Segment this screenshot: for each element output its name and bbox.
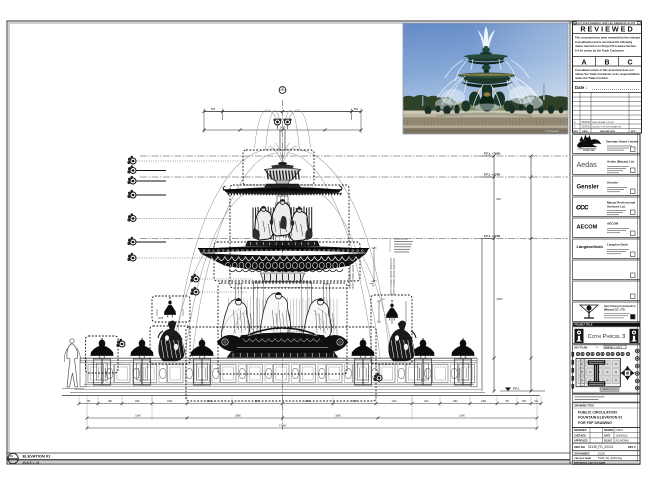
svg-text:F.F.L: F.F.L [513, 387, 520, 391]
svg-text:Consultant(s) and is accorded: Consultant(s) and is accorded the follow… [575, 40, 632, 44]
svg-text:Gensler: Gensler [607, 181, 619, 185]
svg-text:This document has been reviewe: This document has been reviewed by the r… [575, 36, 640, 40]
svg-text:2000: 2000 [305, 401, 311, 403]
svg-text:APPROVED: APPROVED [574, 440, 588, 443]
svg-text:SCALE: SCALE [604, 440, 613, 443]
svg-text:FOUNTAIN SPRAY WATER LEVEL: FOUNTAIN SPRAY WATER LEVEL [348, 252, 351, 290]
svg-text:JOB NUMBER: JOB NUMBER [574, 453, 590, 455]
svg-text:3580: 3580 [335, 415, 341, 418]
svg-text:51135_FD_20101: 51135_FD_20101 [588, 445, 614, 449]
svg-text:1180: 1180 [135, 401, 141, 403]
svg-text:Gensler: Gensler [577, 185, 600, 191]
svg-text:DATE: DATE [582, 130, 588, 133]
svg-text:Venetian Orient Limited: Venetian Orient Limited [606, 140, 639, 144]
svg-text:CAD FILE NAME: CAD FILE NAME [574, 457, 592, 460]
svg-text:Aedas (Macau) Ltd.: Aedas (Macau) Ltd. [607, 160, 635, 164]
svg-text:51135: 51135 [598, 452, 605, 455]
svg-text:12/04/10: 12/04/10 [582, 126, 592, 128]
svg-text:(Macau) CO. LTD.: (Macau) CO. LTD. [604, 308, 626, 312]
svg-text:F.F.L +6780: F.F.L +6780 [484, 173, 500, 177]
svg-text:Langdon Seah: Langdon Seah [607, 243, 628, 247]
svg-text:REFERENCE CAD FILE NAME: REFERENCE CAD FILE NAME [574, 461, 606, 464]
svg-text:1430: 1430 [391, 401, 397, 403]
svg-text:5140: 5140 [135, 415, 141, 418]
svg-text:ELEVATION 01: ELEVATION 01 [23, 454, 52, 459]
svg-text:Aedas: Aedas [577, 160, 598, 169]
svg-text:500: 500 [211, 107, 216, 111]
svg-text:APP: APP [631, 130, 636, 133]
svg-text:1168: 1168 [158, 317, 164, 320]
svg-text:3580: 3580 [235, 415, 241, 418]
svg-text:AECOM: AECOM [607, 222, 619, 226]
svg-text:relieve the Trade Contracto: relieve the Trade Contractor of its resp… [575, 72, 640, 76]
svg-text:FOR FSP DRAWING: FOR FSP DRAWING [578, 421, 612, 425]
svg-text:2000: 2000 [207, 401, 213, 403]
svg-text:Hsin Chong Construction: Hsin Chong Construction [604, 304, 636, 308]
svg-text:Consultant review of this docu: Consultant review of this document does … [575, 68, 634, 72]
svg-text:B: B [604, 59, 609, 66]
svg-text:CWKO: CWKO [616, 429, 624, 432]
svg-text:17460: 17460 [279, 424, 287, 428]
svg-text:FOUNTAIN SPRAY WATER LEVEL: FOUNTAIN SPRAY WATER LEVEL [389, 258, 392, 296]
svg-text:FOUNTAIN SPRAY WATER LEVEL: FOUNTAIN SPRAY WATER LEVEL [351, 252, 354, 290]
svg-text:ccc: ccc [576, 202, 589, 212]
svg-text:VENETIAN: VENETIAN [583, 149, 595, 152]
svg-text:R E V I E W E D: R E V I E W E D [580, 25, 632, 34]
svg-text:FOUNTAIN ELEVATION 01: FOUNTAIN ELEVATION 01 [578, 416, 622, 420]
svg-text:REV 0: REV 0 [628, 445, 636, 449]
svg-text:KEY PLAN: KEY PLAN [575, 346, 588, 349]
svg-text:DESCRIPTION: DESCRIPTION [600, 131, 615, 133]
svg-text:C: C [627, 59, 632, 66]
svg-text:REV: REV [574, 131, 579, 133]
svg-text:1110: 1110 [424, 401, 429, 403]
svg-text:AECOM: AECOM [577, 225, 598, 231]
svg-text:5140: 5140 [459, 415, 465, 418]
svg-text:ISSUED FOR INFORMATION: ISSUED FOR INFORMATION [592, 125, 622, 128]
svg-text:PROJECT TITLE: PROJECT TITLE [575, 325, 593, 327]
svg-text:AS SHOWN: AS SHOWN [616, 440, 629, 443]
svg-text:1390: 1390 [167, 401, 173, 403]
svg-text:under the Trade Contract.: under the Trade Contract. [575, 76, 609, 80]
svg-text:Services Ltd.: Services Ltd. [607, 204, 626, 208]
svg-text:PUBLIC CIRCULATION: PUBLIC CIRCULATION [578, 411, 617, 415]
svg-text:1080: 1080 [481, 401, 487, 403]
svg-text:05/03/10: 05/03/10 [582, 122, 592, 124]
svg-text:12/04/2010: 12/04/2010 [616, 434, 629, 437]
svg-text:FOUNTAIN SPRAY WATER LEVEL: FOUNTAIN SPRAY WATER LEVEL [392, 258, 395, 296]
svg-text:LangdonSeah: LangdonSeah [577, 244, 604, 249]
svg-text:SCALE 1 : 25: SCALE 1 : 25 [23, 461, 40, 465]
svg-text:F.F.L +4730: F.F.L +4730 [484, 234, 500, 238]
svg-text:820: 820 [497, 197, 502, 201]
svg-text:DRAWING TITLE: DRAWING TITLE [575, 405, 595, 408]
svg-text:DWG NO: DWG NO [574, 445, 585, 449]
svg-text:DRAWN: DRAWN [604, 429, 613, 432]
svg-text:PRELIMINARY ISSUE: PRELIMINARY ISSUE [592, 121, 614, 124]
svg-text:Date :: Date : [575, 85, 588, 90]
svg-text:PARCEL 1 LOT 2: PARCEL 1 LOT 2 [603, 388, 617, 391]
svg-text:1180: 1180 [453, 401, 459, 403]
svg-text:DESIGNED: DESIGNED [574, 429, 587, 432]
svg-text:status referred to in Project: status referred to in Project Procedure … [575, 44, 636, 48]
svg-text:CHECKED: CHECKED [574, 434, 586, 437]
svg-text:1560: 1560 [352, 401, 358, 403]
svg-text:PARCEL 1, LOT 2: PARCEL 1, LOT 2 [605, 346, 623, 349]
svg-text:A: A [581, 59, 586, 66]
svg-text:51135_FD_20001.dwg: 51135_FD_20001.dwg [598, 457, 623, 460]
svg-text:DATE: DATE [604, 434, 611, 437]
svg-text:2050: 2050 [497, 297, 503, 301]
svg-text:500: 500 [354, 107, 359, 111]
svg-text:F.F.L +7600: F.F.L +7600 [484, 152, 500, 156]
svg-text:2000: 2000 [255, 401, 261, 403]
svg-text:© Fotosearch: © Fotosearch [545, 130, 560, 133]
svg-text:5.4 for action by the Trade Co: 5.4 for action by the Trade Contractor. [575, 48, 625, 52]
